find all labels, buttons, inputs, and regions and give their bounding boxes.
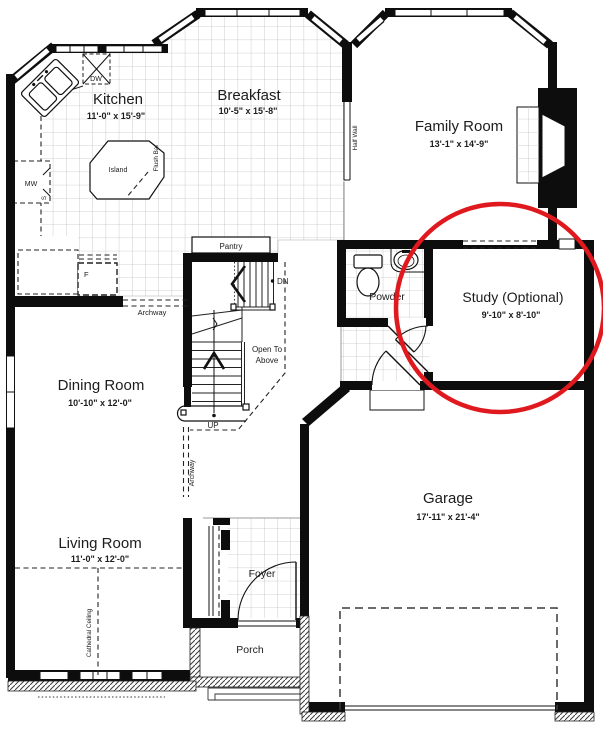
kitchen-dining-wall	[10, 296, 123, 307]
room-dims-garage: 17'-11" x 21'-4"	[416, 512, 479, 522]
study-corner-vent	[559, 239, 575, 249]
stair-left-wall	[183, 253, 192, 387]
right-exterior-wall	[584, 249, 594, 712]
room-dims-family-room: 13'-1" x 14'-9"	[430, 139, 489, 149]
room-dims-living-room: 11'-0" x 12'-0"	[71, 554, 129, 564]
flush-bar-label: Flush Bar	[153, 145, 160, 172]
living-window-sill	[8, 681, 196, 691]
breakfast-family-wall	[342, 42, 352, 102]
study-left-wall-upper	[424, 249, 433, 326]
stairs-dn-label: DN	[277, 277, 289, 286]
family-right-wall-upper	[548, 42, 557, 92]
stove-label: S	[41, 196, 48, 200]
powder-door-gap	[388, 318, 426, 327]
powder-left-wall	[337, 249, 346, 326]
garage-corner-hatch-left	[302, 712, 345, 721]
closet-top-stub	[213, 518, 230, 525]
closet-right-stub-top	[221, 530, 230, 550]
kitchen-top-window-1	[56, 46, 98, 52]
island-label: Island	[109, 167, 128, 174]
garage-landing	[370, 390, 424, 410]
room-dims-study: 9'-10" x 8'-10"	[482, 310, 541, 320]
room-label-kitchen: Kitchen	[93, 91, 143, 108]
cathedral-ceiling-label: Cathedral Ceiling	[86, 608, 93, 657]
microwave-label: MW	[25, 181, 38, 188]
fridge-box	[78, 263, 117, 295]
room-dims-breakfast: 10'-5" x 15'-8"	[219, 106, 278, 116]
dining-left-window	[7, 356, 15, 428]
foyer-left-wall	[183, 518, 192, 628]
pantry-bottom-wall	[183, 253, 278, 262]
family-bay-top-window	[395, 10, 504, 17]
breakfast-bay-top-window	[205, 10, 300, 17]
porch-bottom-wall	[190, 677, 302, 687]
dishwasher-label: DW	[90, 76, 102, 83]
room-label-powder: Powder	[369, 291, 405, 303]
garage-left-wall	[300, 424, 309, 616]
stairs-up-label: UP	[207, 421, 218, 430]
garage-corner-hatch-right	[555, 712, 594, 721]
up-marker	[212, 414, 216, 418]
garage-left-wall-lower	[300, 616, 309, 714]
open-to-above-label-1: Open To	[252, 345, 283, 354]
floor-plan-drawing: Kitchen 11'-0" x 15'-9" Breakfast 10'-5"…	[0, 0, 603, 738]
powder-toilet	[354, 255, 382, 296]
room-label-garage: Garage	[423, 490, 473, 507]
cabinet-run	[18, 250, 78, 294]
foyer-bottom-wall-left	[192, 618, 238, 628]
closet-right-stub-bottom	[221, 600, 230, 618]
room-dims-kitchen: 11'-0" x 15'-9"	[87, 111, 145, 121]
garage-entry-gap	[372, 381, 420, 390]
pantry-label: Pantry	[219, 242, 242, 251]
family-right-wall-lower	[548, 206, 557, 244]
room-label-foyer: Foyer	[249, 568, 276, 580]
floor-plan: Kitchen 11'-0" x 15'-9" Breakfast 10'-5"…	[0, 0, 603, 738]
stair-newel-wall	[184, 387, 191, 407]
archway-kitchen-label: Archway	[138, 308, 167, 317]
room-label-living-room: Living Room	[58, 535, 141, 552]
room-label-dining-room: Dining Room	[58, 377, 145, 394]
room-label-breakfast: Breakfast	[217, 87, 281, 104]
room-label-family-room: Family Room	[415, 118, 503, 135]
room-label-study: Study (Optional)	[462, 289, 563, 305]
garage-bottom-wall-right	[555, 702, 594, 712]
kitchen-top-window-2	[106, 46, 162, 52]
room-dims-dining-room: 10'-10" x 12'-0"	[68, 398, 132, 408]
fridge-label: F	[84, 270, 89, 279]
half-wall-label: Half Wall	[352, 126, 359, 151]
room-label-porch: Porch	[236, 644, 264, 656]
open-to-above-label-2: Above	[256, 356, 279, 365]
living-bottom-windows	[40, 672, 162, 680]
powder-bottom-wall	[337, 318, 388, 327]
dn-marker	[271, 279, 274, 282]
archway-hall-label: Archway	[189, 459, 196, 486]
